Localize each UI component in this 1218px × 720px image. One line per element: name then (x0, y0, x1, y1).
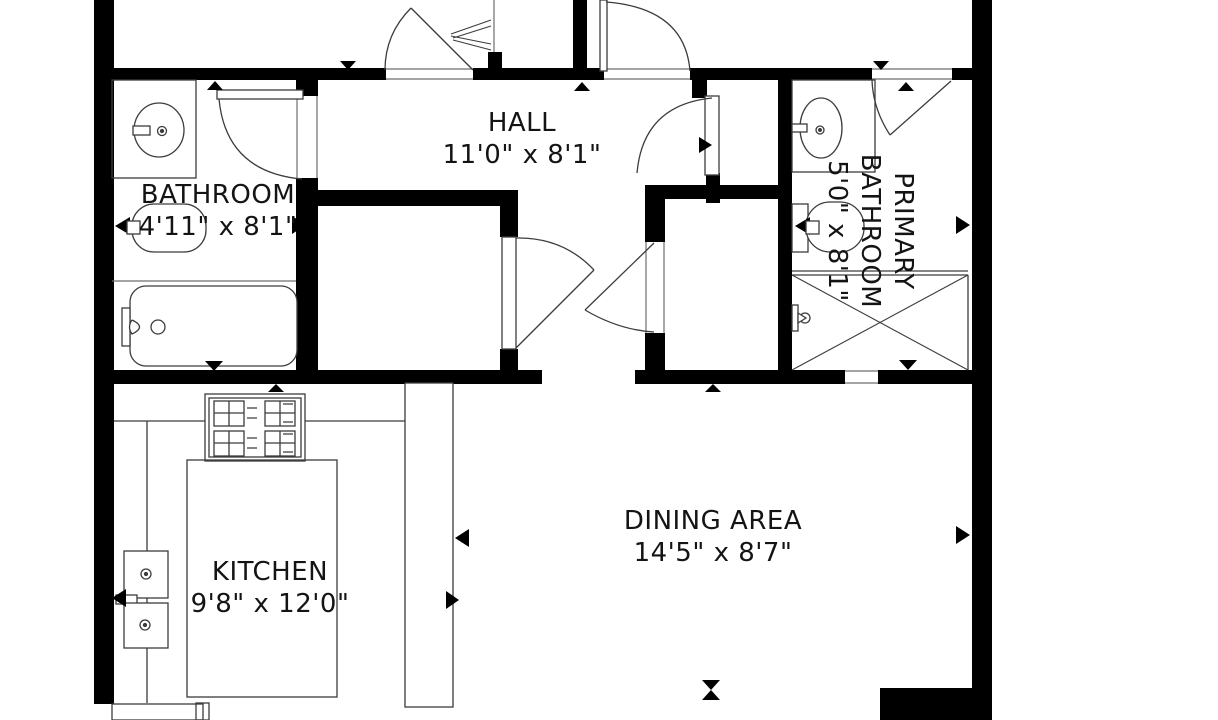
opening-top-right-door (604, 69, 690, 79)
kitchen-label: KITCHEN 9'8" x 12'0" (145, 556, 395, 620)
wall-closet1-right-upper (500, 190, 518, 237)
marker-right-icon (956, 526, 970, 544)
marker-up-icon (207, 81, 223, 90)
wall-right (972, 0, 992, 720)
room-name: KITCHEN (145, 556, 395, 588)
stove-icon (205, 394, 305, 461)
opening-top-left-door (386, 69, 473, 79)
dining-area-label: DINING AREA 14'5" x 8'7" (563, 505, 863, 569)
room-name: HALL (412, 107, 632, 139)
room-name: PRIMARY (886, 131, 919, 331)
bathroom-label: BATHROOM 4'11" x 8'1" (108, 179, 328, 243)
wall-stub-niche (488, 52, 502, 72)
primary-bathroom-label: PRIMARY BATHROOM 5'0" x 8'1" (819, 131, 919, 331)
room-name: DINING AREA (563, 505, 863, 537)
marker-up-icon (898, 82, 914, 91)
wall-stub-hall-door (692, 80, 707, 98)
door-closet1 (502, 237, 594, 349)
bathtub-icon (112, 281, 297, 366)
door-top-left (385, 8, 473, 70)
wall-top-vertical (573, 0, 587, 72)
wall-closet2-top (645, 185, 792, 199)
opening-bathroom-door (297, 96, 317, 178)
room-name: BATHROOM (108, 179, 328, 211)
marker-up-icon (268, 384, 284, 392)
wall-left (94, 0, 114, 704)
marker-bowtie-icon (702, 680, 720, 700)
door-closet2 (585, 243, 654, 332)
wall-top-a (112, 68, 386, 80)
bottom-left-appliances (112, 703, 209, 720)
bifold-door-icon (451, 20, 491, 50)
hall-label: HALL 11'0" x 8'1" (412, 107, 632, 171)
floorplan-page: HALL 11'0" x 8'1" BATHROOM 4'11" x 8'1" … (0, 0, 1218, 720)
room-dimensions: 5'0" x 8'1" (820, 131, 853, 331)
wall-closet2-left-lower (645, 333, 665, 372)
kitchen-counter-column (405, 383, 453, 707)
room-dimensions: 9'8" x 12'0" (145, 588, 395, 620)
window-primary-bath (845, 371, 878, 383)
door-top-right (600, 0, 690, 71)
wall-primary-bath-left (778, 80, 792, 372)
wall-middle-c (878, 370, 992, 384)
wall-closet1-top (296, 190, 518, 206)
wall-closet2-left-upper (645, 185, 665, 242)
marker-up-icon (705, 384, 721, 392)
room-dimensions: 11'0" x 8'1" (412, 139, 632, 171)
door-bathroom (217, 90, 303, 179)
opening-closet2-door (646, 242, 664, 333)
bathroom-vanity-sink-icon (112, 80, 196, 178)
marker-down-icon (899, 360, 917, 370)
door-hall (637, 96, 719, 175)
wall-middle-b (635, 370, 845, 384)
room-dimensions: 14'5" x 8'7" (563, 537, 863, 569)
wall-middle-a (94, 370, 542, 384)
wall-top-d (952, 68, 992, 80)
wall-top-c (690, 68, 872, 80)
marker-up-icon (574, 82, 590, 91)
marker-left-icon (455, 529, 469, 547)
marker-right-icon (956, 216, 970, 234)
opening-primary-door (872, 69, 952, 79)
room-name: BATHROOM (853, 131, 886, 331)
wall-bottom-right-block (880, 688, 992, 720)
room-dimensions: 4'11" x 8'1" (108, 211, 328, 243)
